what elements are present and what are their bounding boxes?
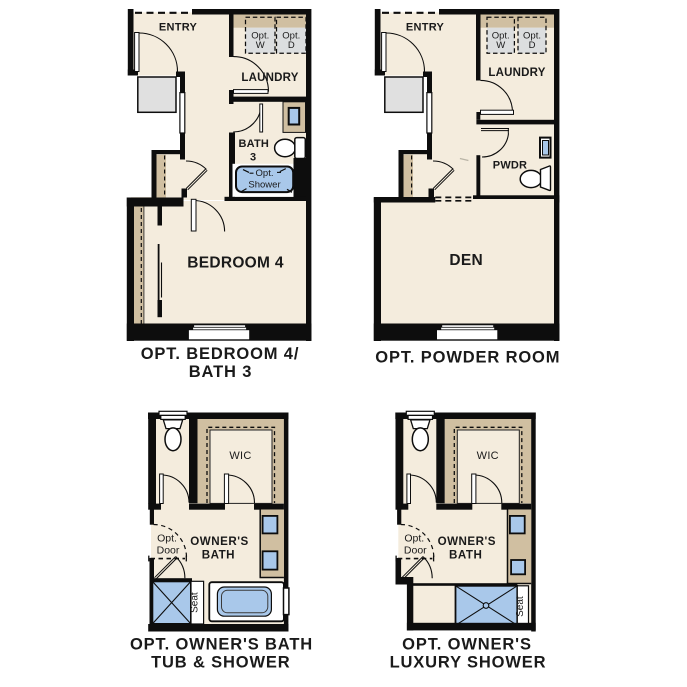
- svg-text:TUB & SHOWER: TUB & SHOWER: [151, 654, 290, 672]
- svg-text:OWNER'S: OWNER'S: [438, 535, 496, 548]
- svg-text:W: W: [256, 40, 265, 51]
- svg-text:W: W: [496, 40, 505, 51]
- svg-text:OWNER'S: OWNER'S: [190, 535, 248, 548]
- svg-text:LAUNDRY: LAUNDRY: [241, 72, 298, 84]
- svg-text:BEDROOM 4: BEDROOM 4: [187, 255, 284, 272]
- svg-text:Shower: Shower: [248, 180, 280, 191]
- svg-text:BATH 3: BATH 3: [189, 363, 252, 381]
- svg-text:ENTRY: ENTRY: [159, 22, 198, 34]
- svg-text:Seat: Seat: [515, 596, 526, 617]
- svg-text:DEN: DEN: [449, 252, 483, 269]
- svg-text:Opt.: Opt.: [256, 168, 274, 179]
- svg-text:Door: Door: [157, 545, 180, 557]
- svg-text:D: D: [288, 40, 295, 51]
- svg-text:D: D: [529, 40, 536, 51]
- svg-text:BATH: BATH: [449, 549, 482, 562]
- svg-text:PWDR: PWDR: [493, 160, 527, 172]
- svg-text:LUXURY SHOWER: LUXURY SHOWER: [390, 654, 547, 672]
- svg-text:3: 3: [250, 152, 256, 164]
- svg-text:WIC: WIC: [229, 450, 251, 462]
- svg-text:OPT. OWNER'S: OPT. OWNER'S: [402, 636, 532, 654]
- svg-text:ENTRY: ENTRY: [406, 22, 445, 34]
- svg-text:OPT. OWNER'S BATH: OPT. OWNER'S BATH: [130, 636, 313, 654]
- svg-text:OPT. POWDER ROOM: OPT. POWDER ROOM: [375, 349, 560, 367]
- svg-text:OPT. BEDROOM 4/: OPT. BEDROOM 4/: [141, 345, 300, 363]
- svg-text:BATH: BATH: [202, 549, 235, 562]
- svg-text:Door: Door: [404, 545, 427, 557]
- svg-text:LAUNDRY: LAUNDRY: [488, 67, 545, 79]
- svg-text:Opt.: Opt.: [404, 533, 424, 545]
- svg-text:WIC: WIC: [477, 450, 499, 462]
- svg-text:Seat: Seat: [190, 592, 201, 613]
- svg-text:Opt.: Opt.: [157, 533, 177, 545]
- svg-text:BATH: BATH: [239, 138, 270, 150]
